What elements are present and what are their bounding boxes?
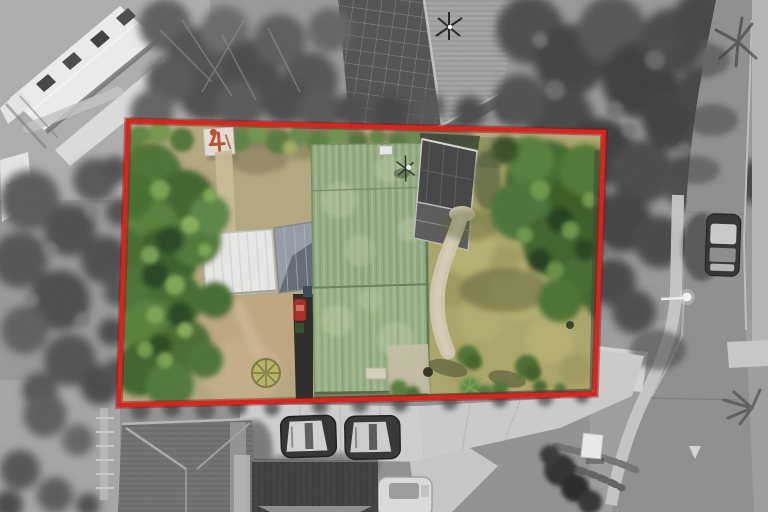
aerial-photo — [0, 0, 768, 512]
aerial-photo-canvas — [0, 0, 768, 512]
photo-grain — [0, 0, 768, 512]
